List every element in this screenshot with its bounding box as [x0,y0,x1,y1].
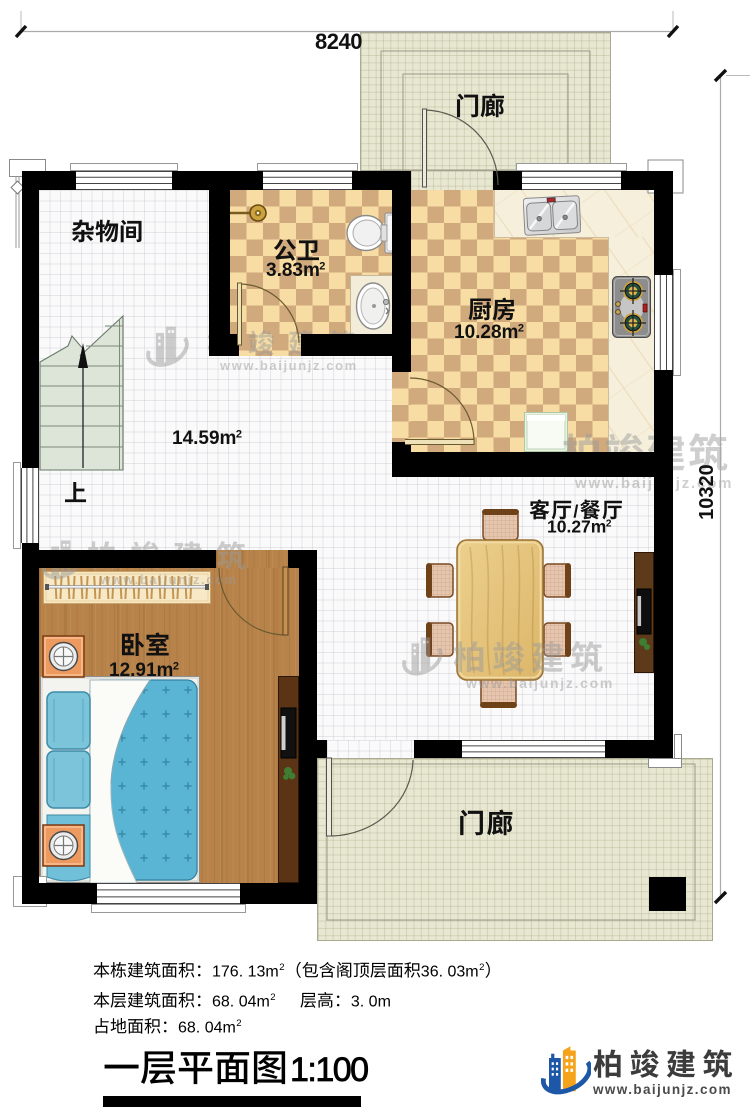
svg-text:68. 04m: 68. 04m [212,993,270,1010]
svg-text:www.baijunjz.com: www.baijunjz.com [593,1082,732,1097]
svg-text:2: 2 [173,660,179,672]
svg-text:10.28m: 10.28m [454,322,518,343]
svg-text:14.59m: 14.59m [172,428,236,449]
svg-text:2: 2 [236,1018,241,1029]
svg-text:36. 03m: 36. 03m [421,963,479,980]
svg-text:2: 2 [518,322,524,334]
svg-text:10320: 10320 [696,464,718,520]
svg-text:68. 04m: 68. 04m [178,1019,236,1036]
svg-text:www.baijunjz.com: www.baijunjz.com [466,675,614,691]
svg-text:1:100: 1:100 [290,1051,368,1089]
svg-text:2: 2 [279,962,284,973]
svg-text:10.27m: 10.27m [547,517,606,537]
svg-text:176. 13m: 176. 13m [212,963,279,980]
svg-text:8240: 8240 [315,29,362,54]
svg-text:2: 2 [236,428,242,440]
svg-text:12.91m: 12.91m [109,660,173,681]
svg-text:2: 2 [270,992,275,1003]
svg-text:www.baijunjz.com: www.baijunjz.com [220,358,358,373]
svg-text:2: 2 [319,260,325,272]
svg-text:3. 0m: 3. 0m [351,993,391,1010]
svg-text:2: 2 [606,518,612,529]
svg-text:3.83m: 3.83m [266,260,320,281]
svg-text:2: 2 [479,962,484,973]
